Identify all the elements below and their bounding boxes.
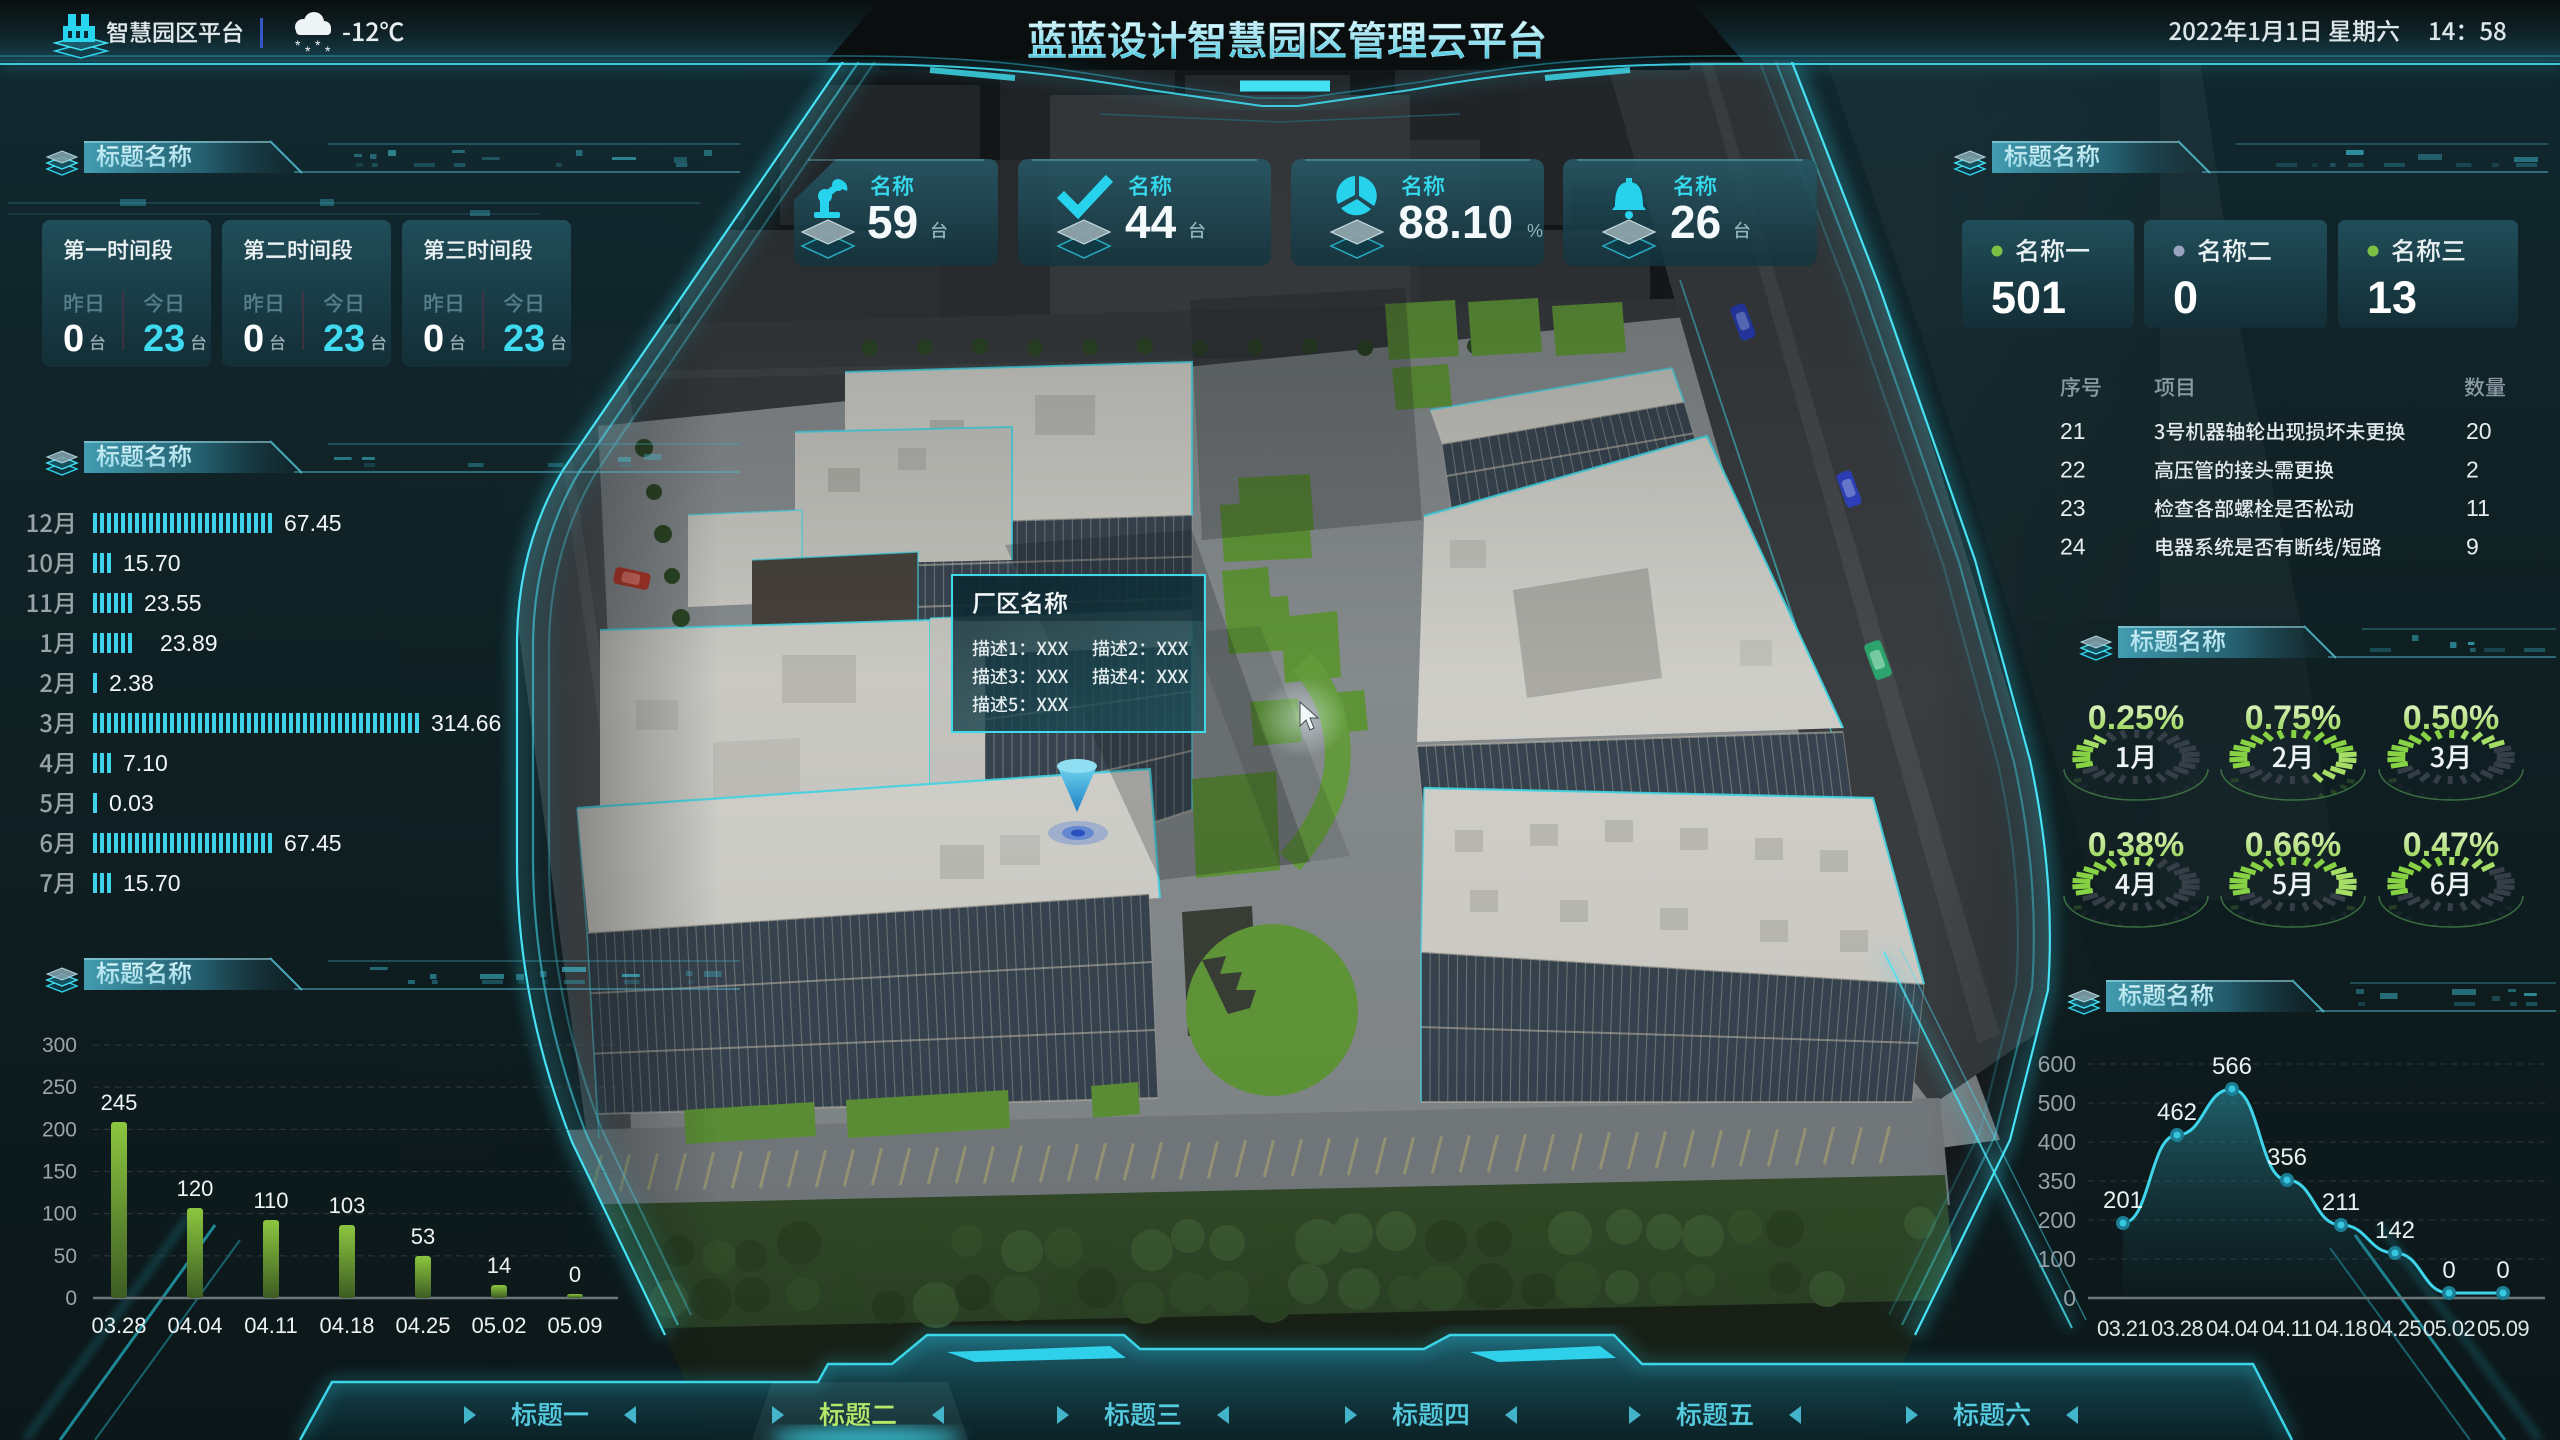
svg-text:11: 11 <box>2466 495 2490 521</box>
svg-text:250: 250 <box>42 1076 77 1099</box>
svg-text:03.28: 03.28 <box>91 1313 146 1338</box>
svg-text:142: 142 <box>2375 1217 2415 1244</box>
svg-text:*: * <box>305 43 311 59</box>
svg-text:04.18: 04.18 <box>319 1313 374 1338</box>
svg-text:2: 2 <box>2466 457 2479 483</box>
svg-text:2.38: 2.38 <box>109 670 154 696</box>
svg-text:05.02: 05.02 <box>471 1313 526 1338</box>
svg-text:22: 22 <box>2060 457 2086 483</box>
svg-text:*: * <box>325 43 331 59</box>
svg-text:05.02: 05.02 <box>2423 1316 2475 1341</box>
svg-text:13: 13 <box>2367 272 2417 323</box>
svg-text:23.55: 23.55 <box>144 590 202 616</box>
svg-text:26: 26 <box>1670 196 1721 248</box>
svg-text:23.89: 23.89 <box>160 630 218 656</box>
svg-text:0.47%: 0.47% <box>2403 826 2499 864</box>
svg-text:05.09: 05.09 <box>547 1313 602 1338</box>
svg-text:0: 0 <box>63 318 84 360</box>
svg-text:0: 0 <box>2496 1257 2509 1284</box>
svg-text:23: 23 <box>323 318 365 360</box>
svg-text:03.28: 03.28 <box>2151 1316 2203 1341</box>
svg-text:03.21: 03.21 <box>2097 1316 2149 1341</box>
svg-text:245: 245 <box>101 1090 138 1115</box>
svg-text:200: 200 <box>42 1118 77 1141</box>
svg-text:600: 600 <box>2038 1051 2076 1077</box>
svg-text:44: 44 <box>1125 196 1177 248</box>
svg-text:88.10: 88.10 <box>1398 196 1513 248</box>
svg-text:400: 400 <box>2038 1129 2076 1155</box>
svg-text:21: 21 <box>2060 418 2086 444</box>
svg-text:150: 150 <box>42 1161 77 1184</box>
svg-text:59: 59 <box>867 196 918 248</box>
svg-text:0: 0 <box>423 318 444 360</box>
svg-text:04.04: 04.04 <box>167 1313 222 1338</box>
svg-text:500: 500 <box>2038 1090 2076 1116</box>
svg-text:24: 24 <box>2060 534 2086 560</box>
svg-text:7.10: 7.10 <box>123 750 168 776</box>
svg-text:%: % <box>1527 221 1543 241</box>
svg-text:23: 23 <box>2060 495 2086 521</box>
svg-text:566: 566 <box>2212 1053 2252 1080</box>
svg-text:200: 200 <box>2038 1207 2076 1233</box>
svg-text:15.70: 15.70 <box>123 550 181 576</box>
svg-text:201: 201 <box>2103 1187 2143 1214</box>
svg-text:356: 356 <box>2267 1144 2307 1171</box>
svg-text:0.66%: 0.66% <box>2245 826 2341 864</box>
svg-text:50: 50 <box>54 1245 77 1268</box>
svg-text:462: 462 <box>2157 1099 2197 1126</box>
svg-text:0.38%: 0.38% <box>2088 826 2184 864</box>
svg-text:67.45: 67.45 <box>284 830 342 856</box>
svg-text:04.25: 04.25 <box>395 1313 450 1338</box>
svg-text:04.18: 04.18 <box>2315 1316 2367 1341</box>
svg-text:0: 0 <box>2442 1257 2455 1284</box>
svg-text:9: 9 <box>2466 534 2479 560</box>
svg-text:23: 23 <box>503 318 545 360</box>
svg-text:0.75%: 0.75% <box>2245 699 2341 737</box>
svg-text:0.50%: 0.50% <box>2403 699 2499 737</box>
svg-text:110: 110 <box>253 1188 288 1213</box>
svg-text:0.25%: 0.25% <box>2088 699 2184 737</box>
svg-text:300: 300 <box>42 1034 77 1057</box>
svg-text:501: 501 <box>1991 272 2066 323</box>
svg-text:103: 103 <box>329 1193 366 1218</box>
svg-text:05.09: 05.09 <box>2477 1316 2529 1341</box>
svg-text:15.70: 15.70 <box>123 870 181 896</box>
svg-text:67.45: 67.45 <box>284 510 342 536</box>
svg-text:120: 120 <box>177 1176 214 1201</box>
svg-text:04.04: 04.04 <box>2206 1316 2258 1341</box>
svg-text:04.11: 04.11 <box>2262 1316 2313 1341</box>
svg-text:0: 0 <box>2173 272 2198 323</box>
svg-text:04.11: 04.11 <box>244 1313 297 1338</box>
svg-text:*: * <box>295 37 301 53</box>
svg-text:0: 0 <box>243 318 264 360</box>
svg-text:314.66: 314.66 <box>431 710 501 736</box>
svg-text:100: 100 <box>2038 1246 2076 1272</box>
svg-text:350: 350 <box>2038 1168 2076 1194</box>
svg-text:04.25: 04.25 <box>2369 1316 2421 1341</box>
svg-text:*: * <box>315 37 321 53</box>
svg-text:23: 23 <box>143 318 185 360</box>
svg-text:14: 14 <box>487 1253 511 1278</box>
svg-text:211: 211 <box>2322 1189 2360 1216</box>
svg-text:0: 0 <box>65 1287 77 1310</box>
svg-text:20: 20 <box>2466 418 2492 444</box>
svg-text:53: 53 <box>411 1224 435 1249</box>
svg-text:100: 100 <box>42 1203 77 1226</box>
svg-text:0: 0 <box>569 1262 581 1287</box>
svg-text:0.03: 0.03 <box>109 790 154 816</box>
svg-text:0: 0 <box>2063 1285 2076 1311</box>
